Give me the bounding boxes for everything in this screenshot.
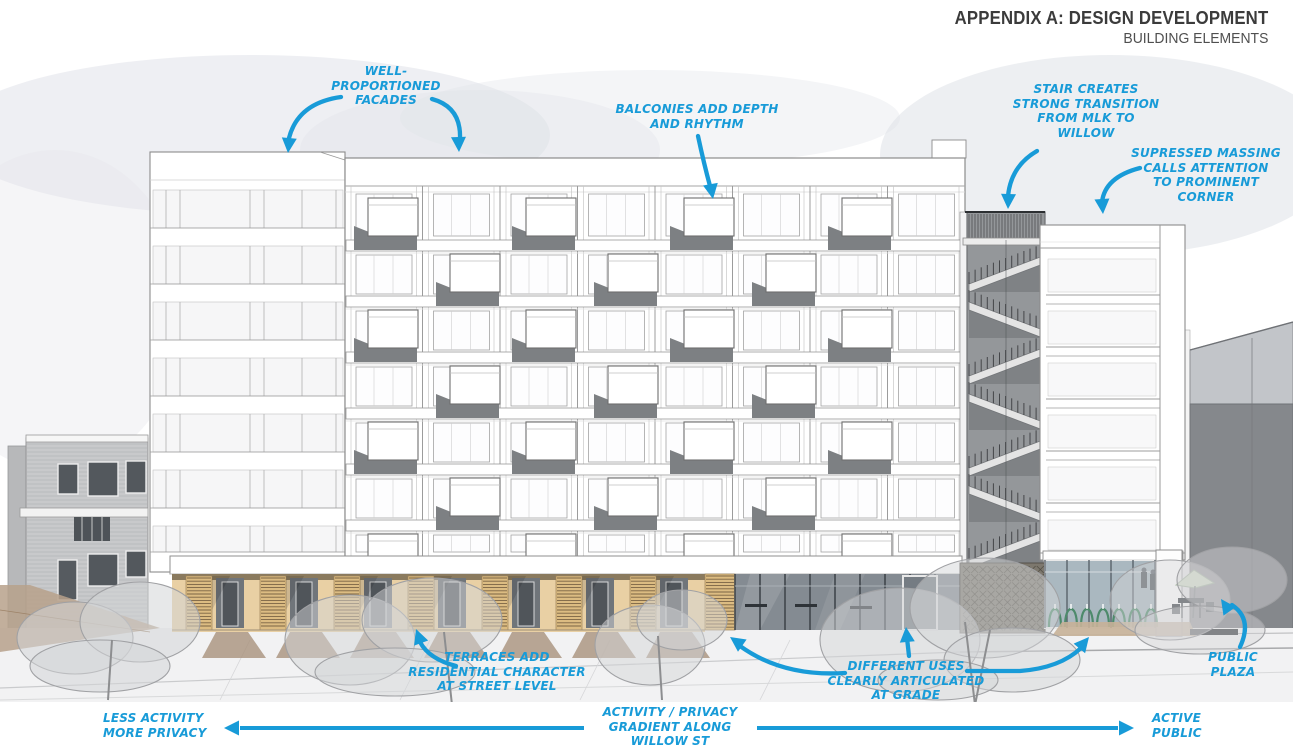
page-subtitle: BUILDING ELEMENTS — [954, 30, 1268, 47]
page-title: APPENDIX A: DESIGN DEVELOPMENT — [954, 8, 1268, 29]
annotation-well-proportioned-facades: WELL- PROPORTIONED FACADES — [306, 64, 466, 108]
stair-tower — [960, 212, 1047, 570]
main-building-right-wing — [1040, 225, 1185, 560]
annotation-balconies: BALCONIES ADD DEPTH AND RHYTHM — [597, 102, 797, 131]
annotation-stair-transition: STAIR CREATES STRONG TRANSITION FROM MLK… — [1001, 82, 1171, 140]
design-development-page: APPENDIX A: DESIGN DEVELOPMENT BUILDING … — [0, 0, 1293, 754]
annotation-suppressed-massing: SUPRESSED MASSING CALLS ATTENTION TO PRO… — [1121, 146, 1291, 204]
page-header: APPENDIX A: DESIGN DEVELOPMENT BUILDING … — [931, 8, 1268, 47]
main-building-left-wing — [150, 152, 345, 572]
gradient-axis-center-label: ACTIVITY / PRIVACY GRADIENT ALONG WILLOW… — [575, 705, 765, 749]
gradient-axis-left-label: LESS ACTIVITY MORE PRIVACY — [103, 711, 263, 740]
gradient-axis-right-label: ACTIVE PUBLIC — [1152, 711, 1242, 740]
annotation-different-uses: DIFFERENT USES CLEARLY ARTICULATED AT GR… — [811, 659, 1001, 703]
annotation-public-plaza: PUBLIC PLAZA — [1188, 650, 1278, 679]
annotation-terraces: TERRACES ADD RESIDENTIAL CHARACTER AT ST… — [402, 650, 592, 694]
